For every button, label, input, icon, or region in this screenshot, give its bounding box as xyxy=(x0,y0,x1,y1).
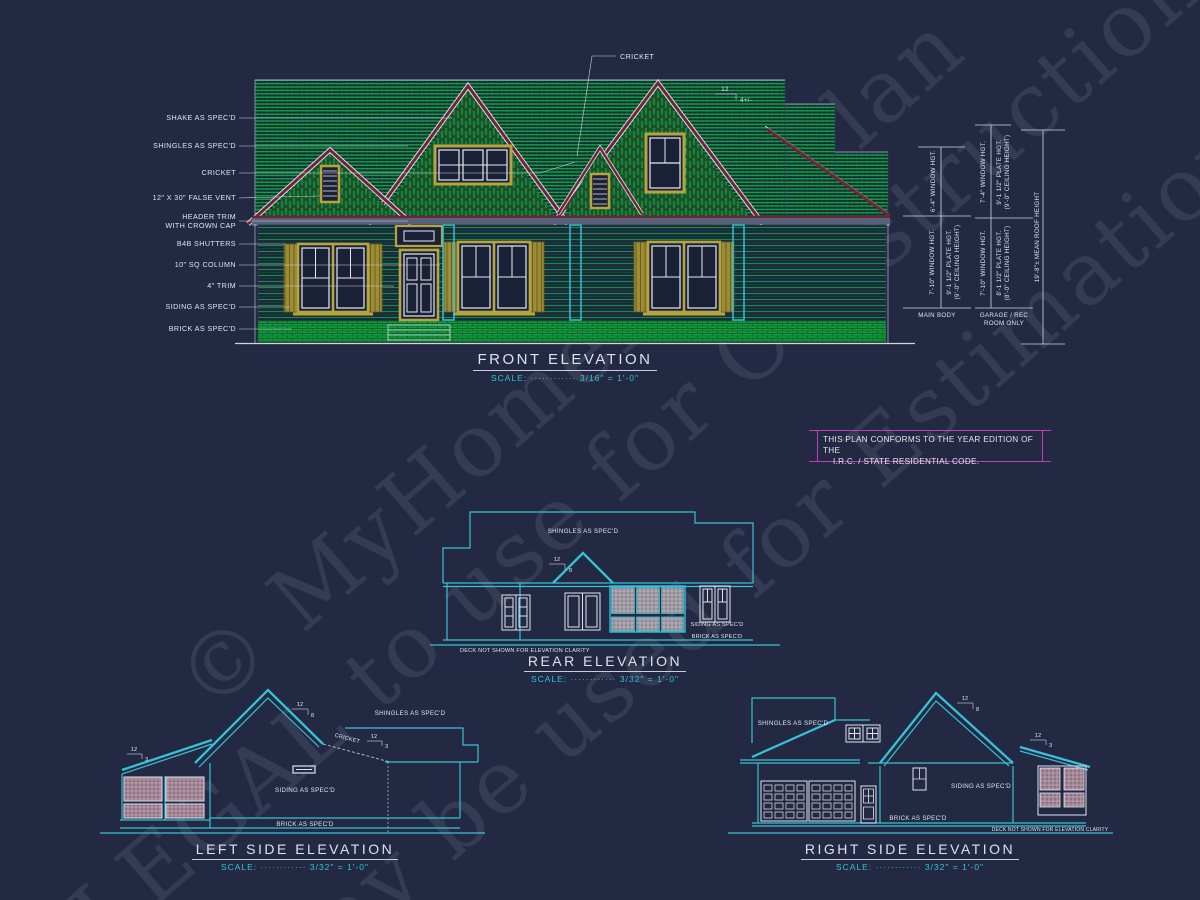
label-false-vent: 12" X 30" FALSE VENT xyxy=(153,193,237,202)
code-note-line1: THIS PLAN CONFORMS TO THE YEAR EDITION O… xyxy=(823,434,1037,456)
label-header-trim-2: WITH CROWN CAP xyxy=(165,221,236,230)
label-header-trim-1: HEADER TRIM xyxy=(182,212,236,221)
front-window-right xyxy=(634,242,734,314)
right-garage-doors xyxy=(761,781,855,821)
right-elevation-title: RIGHT SIDE ELEVATION xyxy=(801,841,1019,860)
left-label-cricket: CRICKET xyxy=(334,733,361,746)
right-clerestory-window xyxy=(846,725,880,742)
svg-text:19'-8"± MEAN ROOF HEIGHT: 19'-8"± MEAN ROOF HEIGHT xyxy=(1034,192,1041,283)
right-elevation-title-block: RIGHT SIDE ELEVATION SCALE: ············… xyxy=(800,841,1020,872)
pitch-marker-left-cricket: 12 3 xyxy=(367,734,388,750)
left-screen-porch xyxy=(124,777,204,818)
svg-text:6'-4" WINDOW HGT.: 6'-4" WINDOW HGT. xyxy=(930,150,937,212)
svg-text:(9'-0" CEILING HEIGHT): (9'-0" CEILING HEIGHT) xyxy=(954,225,961,300)
svg-text:12: 12 xyxy=(1035,733,1042,739)
svg-text:ROOM ONLY: ROOM ONLY xyxy=(984,320,1024,327)
svg-text:9'-1 1/2" PLATE HGT.: 9'-1 1/2" PLATE HGT. xyxy=(946,229,953,294)
front-window-center xyxy=(444,242,544,314)
right-entry-door xyxy=(861,786,876,823)
left-elevation-scale: SCALE: ············ 3/32" = 1'-0" xyxy=(185,862,405,872)
svg-text:12: 12 xyxy=(131,747,138,753)
cricket-top-callout: CRICKET xyxy=(620,52,655,61)
right-screen-porch xyxy=(1038,766,1086,815)
code-note-box: THIS PLAN CONFORMS TO THE YEAR EDITION O… xyxy=(817,430,1043,462)
left-label-brick: BRICK AS SPEC'D xyxy=(276,821,333,828)
right-label-brick: BRICK AS SPEC'D xyxy=(889,815,946,822)
rear-label-shingles: SHINGLES AS SPEC'D xyxy=(548,528,619,535)
svg-text:8: 8 xyxy=(976,707,979,713)
front-elevation-title: FRONT ELEVATION xyxy=(473,351,656,371)
blueprint-canvas: © MyHomeFloorPlan ILLEGAL to use for Con… xyxy=(0,0,1200,900)
front-door xyxy=(396,226,442,320)
label-trim: 4" TRIM xyxy=(207,281,236,290)
left-side-elevation-drawing: SHINGLES AS SPEC'D CRICKET SIDING AS SPE… xyxy=(95,678,495,853)
rear-elevation-title-block: REAR ELEVATION SCALE: ············ 3/32"… xyxy=(495,653,715,684)
svg-text:4+/-: 4+/- xyxy=(740,97,752,104)
label-shutters: B4B SHUTTERS xyxy=(177,239,236,248)
triple-window xyxy=(435,146,511,184)
right-label-deck: DECK NOT SHOWN FOR ELEVATION CLARITY xyxy=(992,827,1109,833)
svg-text:(8'-0" CEILING HEIGHT): (8'-0" CEILING HEIGHT) xyxy=(1004,226,1011,301)
rear-elevation-drawing: SHINGLES AS SPEC'D 12 8 SIDING AS SPEC'D… xyxy=(435,490,790,670)
svg-text:12: 12 xyxy=(962,696,969,702)
svg-text:7'-10" WINDOW HGT.: 7'-10" WINDOW HGT. xyxy=(980,230,987,296)
svg-text:7'-4" WINDOW HGT.: 7'-4" WINDOW HGT. xyxy=(980,141,987,203)
svg-text:8: 8 xyxy=(569,568,572,574)
louver-vent xyxy=(591,174,609,208)
gable-window xyxy=(646,134,684,192)
rear-french-doors xyxy=(502,593,600,630)
left-label-siding: SIDING AS SPEC'D xyxy=(275,787,335,794)
left-vent xyxy=(293,766,315,773)
rear-window xyxy=(700,586,730,622)
label-shake: SHAKE AS SPEC'D xyxy=(166,113,236,122)
svg-text:(9'-0" CEILING HEIGHT): (9'-0" CEILING HEIGHT) xyxy=(1004,135,1011,210)
code-note-line2: I.R.C. / STATE RESIDENTIAL CODE. xyxy=(823,456,1037,467)
right-gable-window xyxy=(913,768,926,790)
left-elevation-title: LEFT SIDE ELEVATION xyxy=(192,841,398,860)
svg-text:12: 12 xyxy=(371,734,378,740)
svg-text:MAIN BODY: MAIN BODY xyxy=(918,312,955,319)
svg-text:GARAGE / REC: GARAGE / REC xyxy=(980,312,1029,319)
right-elevation-scale: SCALE: ············ 3/32" = 1'-0" xyxy=(800,862,1020,872)
label-shingles: SHINGLES AS SPEC'D xyxy=(153,141,236,150)
svg-text:12: 12 xyxy=(721,86,729,93)
dimension-block: 6'-4" WINDOW HGT. 7'-10" WINDOW HGT. 9'-… xyxy=(893,110,1078,350)
svg-text:3: 3 xyxy=(1049,743,1052,749)
pitch-marker-right-main: 12 8 xyxy=(957,696,979,713)
svg-text:3: 3 xyxy=(145,757,148,763)
dims-garage: 7'-4" WINDOW HGT. 9'-1 1/2" PLATE HGT. (… xyxy=(975,125,1033,327)
label-siding: SIDING AS SPEC'D xyxy=(166,302,236,311)
svg-text:8'-1 1/2" PLATE HGT.: 8'-1 1/2" PLATE HGT. xyxy=(996,230,1003,295)
rear-label-brick: BRICK AS SPEC'D xyxy=(692,634,743,640)
pitch-marker-right-porch: 12 3 xyxy=(1030,733,1052,749)
pitch-marker-rear: 12 8 xyxy=(549,557,572,574)
front-elevation-title-block: FRONT ELEVATION SCALE: ············ 3/16… xyxy=(450,351,680,383)
left-label-shingles: SHINGLES AS SPEC'D xyxy=(375,710,446,717)
label-cricket: CRICKET xyxy=(202,168,237,177)
svg-text:9'-1 1/2" PLATE HGT.: 9'-1 1/2" PLATE HGT. xyxy=(996,139,1003,204)
svg-text:3: 3 xyxy=(385,744,388,750)
svg-text:7'-10" WINDOW HGT.: 7'-10" WINDOW HGT. xyxy=(929,229,936,295)
rear-elevation-title: REAR ELEVATION xyxy=(524,653,686,672)
dims-main-body: 6'-4" WINDOW HGT. 7'-10" WINDOW HGT. 9'-… xyxy=(903,147,971,319)
label-column: 10" SQ COLUMN xyxy=(175,260,236,269)
pitch-marker-left-porch: 12 3 xyxy=(127,747,148,763)
right-label-shingles: SHINGLES AS SPEC'D xyxy=(758,720,829,727)
right-label-siding: SIDING AS SPEC'D xyxy=(951,783,1011,790)
svg-text:12: 12 xyxy=(554,557,561,563)
svg-text:12: 12 xyxy=(297,702,304,708)
louver-vent xyxy=(321,166,339,202)
right-side-elevation-drawing: SHINGLES AS SPEC'D SIDING AS SPEC'D BRIC… xyxy=(728,680,1118,855)
svg-text:8: 8 xyxy=(311,713,314,719)
rear-screen-porch xyxy=(610,586,685,632)
label-brick: BRICK AS SPEC'D xyxy=(169,324,236,333)
rear-label-siding: SIDING AS SPEC'D xyxy=(690,622,743,628)
rear-elevation-scale: SCALE: ············ 3/32" = 1'-0" xyxy=(495,674,715,684)
front-elevation-scale: SCALE: ············ 3/16" = 1'-0" xyxy=(450,373,680,383)
front-window-left xyxy=(284,244,382,314)
left-elevation-title-block: LEFT SIDE ELEVATION SCALE: ············ … xyxy=(185,841,405,872)
